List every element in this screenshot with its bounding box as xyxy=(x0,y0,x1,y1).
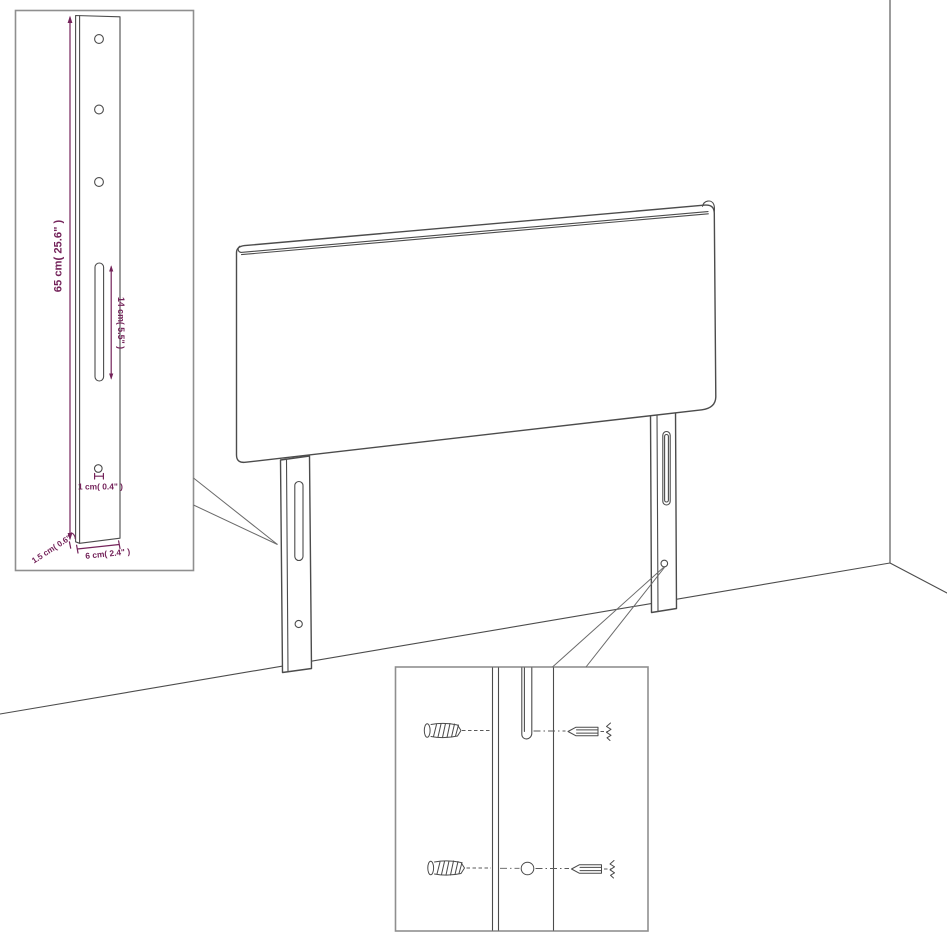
dim-height-label: 65 cm( 25.6" ) xyxy=(53,219,65,292)
headboard-leg-left xyxy=(281,456,312,673)
hardware-inset xyxy=(396,667,649,931)
headboard-face xyxy=(237,205,716,462)
dim-slot-label: 14 cm( 5.5" ) xyxy=(116,297,126,349)
diagram-canvas: 65 cm( 25.6" ) 14 cm( 5.5" ) 1 cm( 0.4" … xyxy=(0,0,947,947)
leg-left-body xyxy=(281,456,312,673)
dimension-inset: 65 cm( 25.6" ) 14 cm( 5.5" ) 1 cm( 0.4" … xyxy=(16,11,194,571)
leg-hole-right xyxy=(661,560,668,567)
leg-slot-right xyxy=(663,432,670,506)
headboard-leg-right xyxy=(651,409,677,613)
leg-hole-left xyxy=(295,620,302,627)
floor-line-right xyxy=(890,563,947,593)
headboard-assembly-diagram: 65 cm( 25.6" ) 14 cm( 5.5" ) 1 cm( 0.4" … xyxy=(0,0,947,947)
dim-hole-label: 1 cm( 0.4" ) xyxy=(78,482,123,492)
headboard-panel xyxy=(237,201,716,462)
callout-line-4 xyxy=(586,567,665,667)
dimension-inset-callout xyxy=(194,478,278,545)
